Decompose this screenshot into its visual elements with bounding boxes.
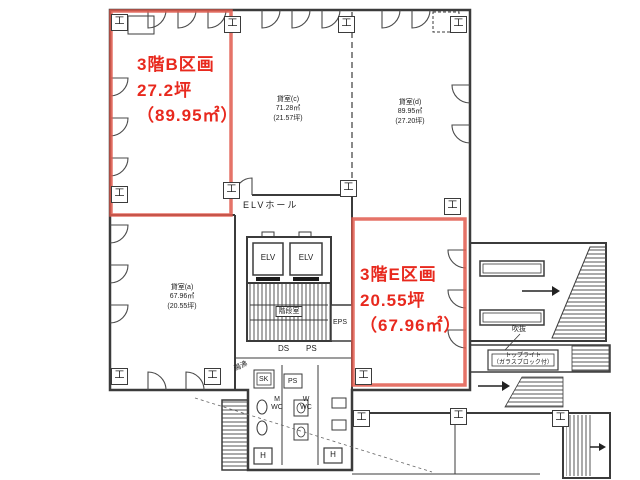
- toplight-sub: （ガラスブロック付）: [493, 360, 553, 367]
- void-label: 吹抜: [512, 325, 526, 334]
- elv-hall-label: ELVホール: [243, 199, 298, 211]
- room-a-label: 貸室(a) 67.96㎡ (20.55坪): [167, 283, 196, 311]
- ds-label: DS: [278, 344, 289, 355]
- section-b-name: 3階B区画: [137, 52, 239, 78]
- right-annex: [470, 243, 606, 341]
- mens-wc-label: M WC: [271, 396, 283, 411]
- toplight-label: トップライト （ガラスブロック付）: [493, 353, 553, 367]
- mens-wc-wc: WC: [271, 404, 283, 412]
- arrow-right-terrace: [552, 286, 560, 296]
- lower-annex-strip: [470, 334, 610, 407]
- section-b-sqm: （89.95㎡）: [137, 103, 239, 129]
- room-d-sqm: 89.95㎡: [395, 107, 424, 116]
- section-e-tsubo: 20.55坪: [360, 288, 462, 314]
- elevator-core: [247, 232, 331, 283]
- section-e-sqm: （67.96㎡）: [360, 313, 462, 339]
- floorplan-page: 3階B区画 27.2坪 （89.95㎡） 3階E区画 20.55坪 （67.96…: [0, 0, 640, 480]
- lower-ramp-hatch: [505, 377, 563, 407]
- section-e-name: 3階E区画: [360, 262, 462, 288]
- room-d-tsubo: (27.20坪): [395, 117, 424, 126]
- column-symbol: 工: [223, 182, 240, 199]
- column-symbol: 工: [353, 410, 370, 427]
- room-a-tsubo: (20.55坪): [167, 302, 196, 311]
- room-c-name: 貸室(c): [273, 95, 302, 104]
- room-c-label: 貸室(c) 71.28㎡ (21.57坪): [273, 95, 302, 123]
- womens-wc-wc: WC: [300, 404, 312, 412]
- stairwell-label: 階段室: [276, 306, 303, 317]
- section-b-tsubo: 27.2坪: [137, 78, 239, 104]
- room-c-tsubo: (21.57坪): [273, 114, 302, 123]
- column-symbol: 工: [355, 368, 372, 385]
- column-symbol: 工: [340, 180, 357, 197]
- column-symbol: 工: [204, 368, 221, 385]
- bottom-terrace: [195, 398, 563, 474]
- room-a-sqm: 67.96㎡: [167, 292, 196, 301]
- column-symbol: 工: [111, 14, 128, 31]
- arrow-right-lower: [502, 381, 510, 391]
- room-d-name: 貸室(d): [395, 98, 424, 107]
- room-d-label: 貸室(d) 89.95㎡ (27.20坪): [395, 98, 424, 126]
- room-c-sqm: 71.28㎡: [273, 104, 302, 113]
- womens-wc-label: W WC: [300, 396, 312, 411]
- column-symbol: 工: [444, 198, 461, 215]
- column-symbol: 工: [224, 16, 241, 33]
- section-b-label: 3階B区画 27.2坪 （89.95㎡）: [137, 52, 239, 129]
- column-symbol: 工: [450, 16, 467, 33]
- hydrant-1-label: H: [260, 451, 266, 462]
- column-symbol: 工: [552, 410, 569, 427]
- annex-ramp-hatch: [552, 247, 606, 338]
- arrow-right-stair: [599, 443, 606, 451]
- floorplan-geometry: [0, 0, 640, 480]
- mens-wc-m: M: [271, 396, 283, 404]
- room-a-name: 貸室(a): [167, 283, 196, 292]
- eps-label: EPS: [333, 318, 347, 327]
- ps-label: PS: [306, 344, 317, 355]
- elv-2-label: ELV: [299, 253, 314, 264]
- column-symbol: 工: [111, 186, 128, 203]
- hydrant-2-label: H: [330, 450, 336, 461]
- womens-wc-w: W: [300, 396, 312, 404]
- ps-2-label: PS: [288, 377, 297, 386]
- column-symbol: 工: [338, 16, 355, 33]
- column-symbol: 工: [111, 368, 128, 385]
- section-e-label: 3階E区画 20.55坪 （67.96㎡）: [360, 262, 462, 339]
- elv-1-label: ELV: [261, 253, 276, 264]
- sk-label: SK: [259, 375, 268, 384]
- column-symbol: 工: [450, 408, 467, 425]
- external-stair: [222, 400, 248, 470]
